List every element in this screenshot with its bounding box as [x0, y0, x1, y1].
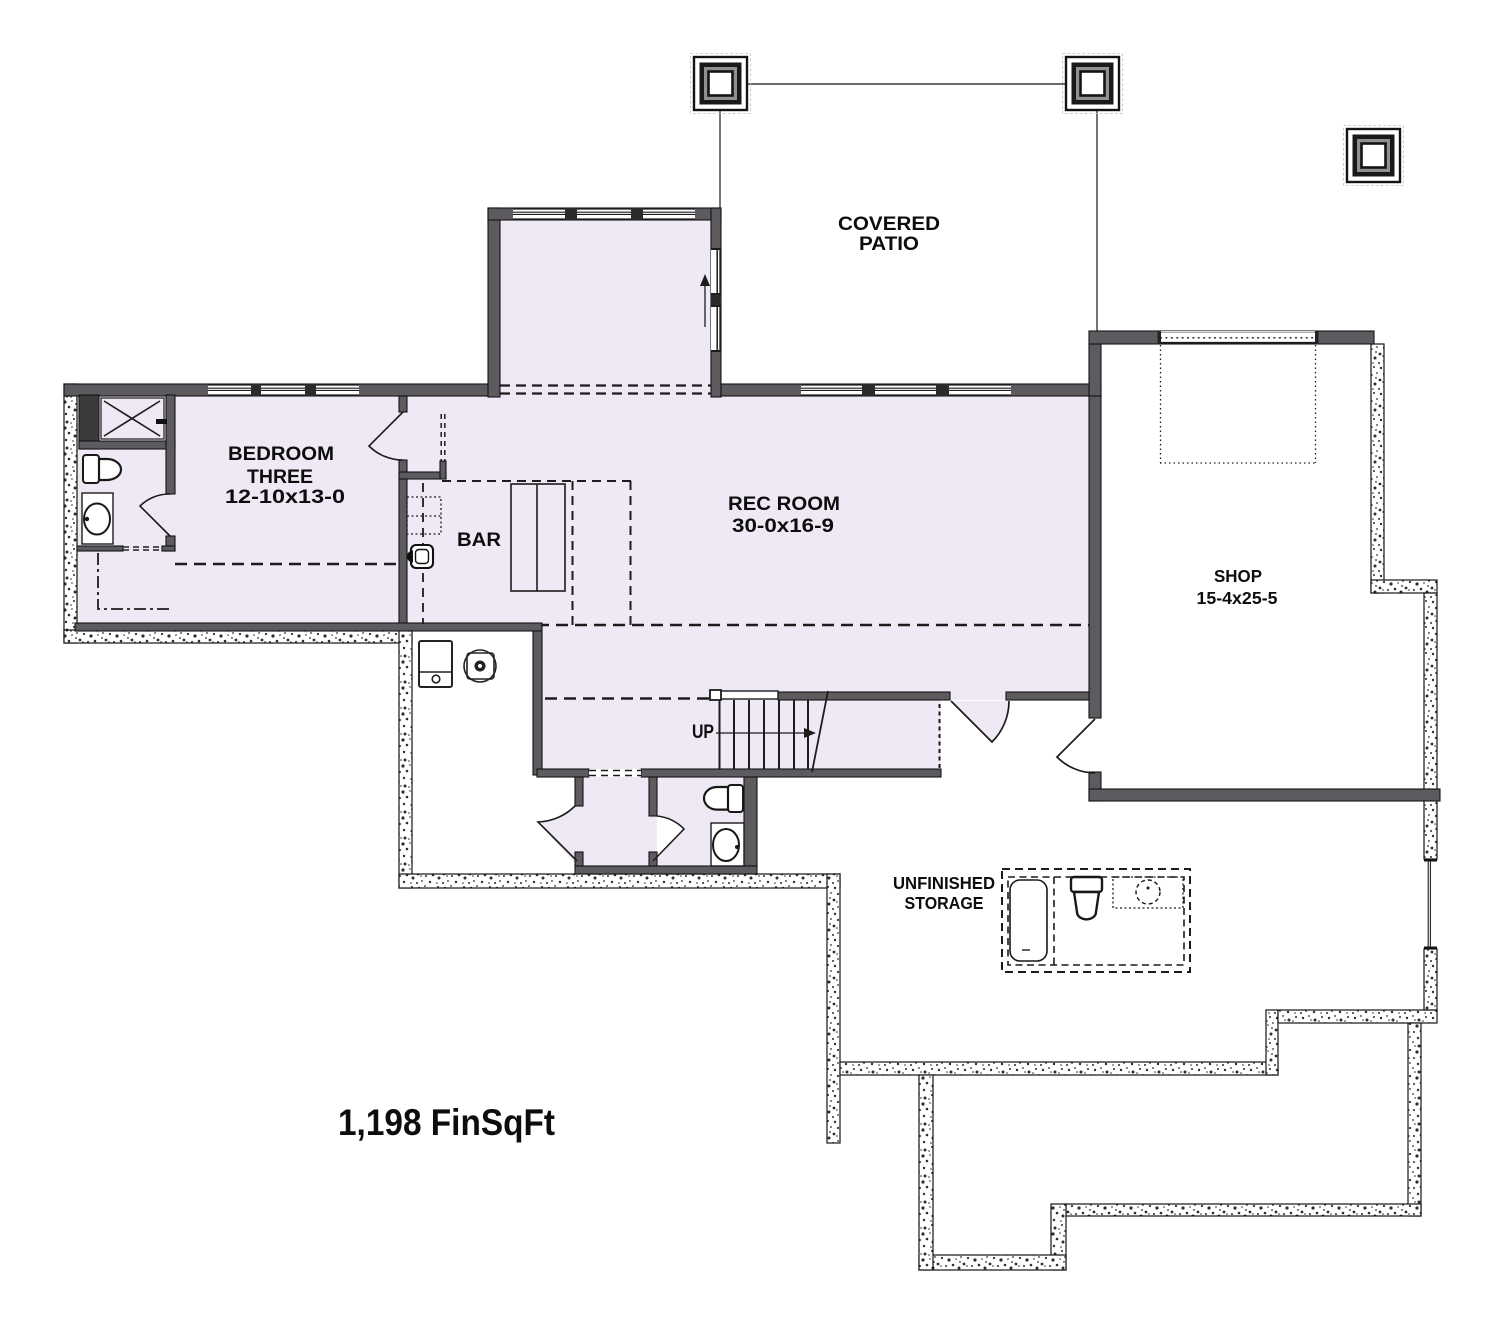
svg-text:UP: UP: [692, 722, 714, 743]
svg-text:SHOP: SHOP: [1214, 566, 1262, 586]
svg-text:BAR: BAR: [457, 530, 501, 551]
svg-text:UNFINISHED: UNFINISHED: [893, 873, 995, 893]
svg-text:30-0x16-9: 30-0x16-9: [732, 516, 834, 537]
svg-text:THREE: THREE: [247, 467, 313, 488]
svg-text:STORAGE: STORAGE: [905, 893, 984, 913]
svg-text:15-4x25-5: 15-4x25-5: [1197, 588, 1278, 608]
svg-text:REC ROOM: REC ROOM: [728, 494, 840, 515]
svg-text:12-10x13-0: 12-10x13-0: [225, 487, 345, 508]
svg-text:COVERED: COVERED: [838, 214, 940, 235]
svg-text:1,198 FinSqFt: 1,198 FinSqFt: [338, 1102, 555, 1143]
svg-text:PATIO: PATIO: [859, 234, 919, 255]
svg-text:BEDROOM: BEDROOM: [228, 444, 334, 465]
